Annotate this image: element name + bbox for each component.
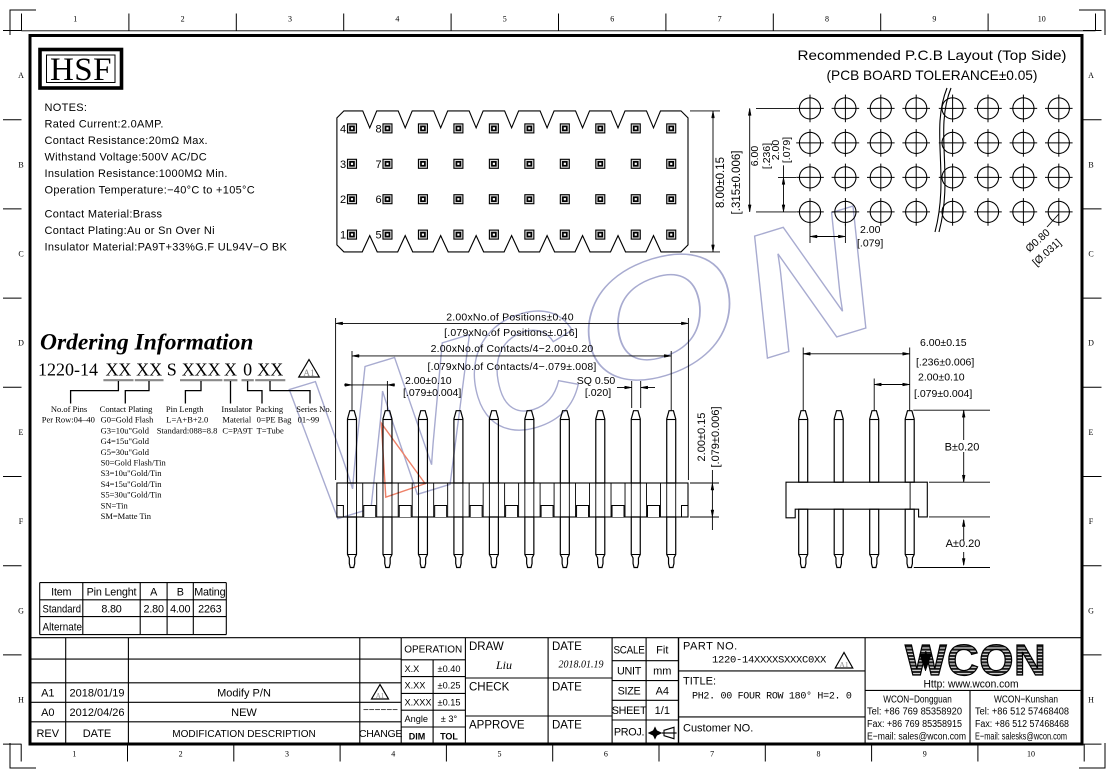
svg-text:H: H: [18, 696, 24, 705]
svg-text:[.079]: [.079]: [781, 137, 793, 163]
svg-text:2018.01.19: 2018.01.19: [559, 660, 604, 671]
svg-text:2012/04/26: 2012/04/26: [69, 707, 124, 719]
svg-text:Angle: Angle: [405, 714, 429, 724]
svg-text:A1: A1: [839, 660, 848, 669]
svg-text:1: 1: [73, 15, 77, 24]
svg-text:Per Row:04–40: Per Row:04–40: [42, 415, 95, 425]
svg-text:Fax: +86 769 85358915: Fax: +86 769 85358915: [867, 719, 962, 730]
svg-text:1220-14: 1220-14: [38, 360, 98, 380]
svg-text:C: C: [18, 250, 23, 259]
svg-text:3: 3: [288, 15, 292, 24]
svg-text:S: S: [167, 360, 177, 380]
svg-text:C: C: [1088, 250, 1093, 259]
svg-text:mm: mm: [653, 666, 671, 678]
svg-text:Insulation Resistance:1000MΩ M: Insulation Resistance:1000MΩ Min.: [45, 168, 228, 180]
svg-text:[.079±0.004]: [.079±0.004]: [403, 387, 461, 399]
svg-text:A: A: [18, 71, 24, 80]
svg-text:9: 9: [932, 15, 936, 24]
svg-text:S3=10u"Gold/Tin: S3=10u"Gold/Tin: [101, 468, 163, 478]
svg-text:[.079]: [.079]: [857, 238, 883, 250]
svg-text:(PCB BOARD TOLERANCE±0.05): (PCB BOARD TOLERANCE±0.05): [827, 67, 1038, 83]
svg-text:CHANGE: CHANGE: [359, 728, 402, 740]
svg-text:4: 4: [391, 750, 395, 759]
svg-text:−−−−−−: −−−−−−: [363, 705, 398, 716]
svg-text:XX: XX: [136, 360, 162, 380]
svg-text:NEW: NEW: [231, 707, 257, 719]
svg-text:XXX: XXX: [182, 360, 221, 380]
svg-text:PH2. 00 FOUR ROW 180° H=2. 0: PH2. 00 FOUR ROW 180° H=2. 0: [692, 691, 852, 703]
svg-text:7: 7: [718, 15, 722, 24]
svg-text:5: 5: [503, 15, 507, 24]
svg-text:Http: www.wcon.com: Http: www.wcon.com: [924, 679, 1019, 691]
svg-text:3: 3: [285, 750, 289, 759]
svg-text:E−mail: salesks@wcon.com: E−mail: salesks@wcon.com: [975, 732, 1067, 743]
svg-text:2: 2: [181, 15, 185, 24]
svg-text:A±0.20: A±0.20: [946, 538, 981, 550]
svg-text:5: 5: [498, 750, 502, 759]
svg-text:4: 4: [395, 15, 399, 24]
svg-text:SHEET: SHEET: [612, 705, 647, 717]
svg-text:9: 9: [923, 750, 927, 759]
svg-text:[.020]: [.020]: [585, 387, 611, 399]
svg-text:Withstand Voltage:500V AC/DC: Withstand Voltage:500V AC/DC: [45, 151, 208, 163]
svg-text:DATE: DATE: [552, 641, 582, 653]
svg-text:CHECK: CHECK: [469, 682, 510, 694]
svg-text:Packing: Packing: [256, 404, 284, 414]
svg-text:Mating: Mating: [194, 587, 225, 599]
svg-text:NOTES:: NOTES:: [45, 102, 88, 114]
svg-text:DATE: DATE: [83, 728, 112, 740]
svg-text:± 3°: ± 3°: [441, 714, 458, 724]
svg-text:E: E: [1089, 428, 1094, 437]
svg-text:3: 3: [340, 159, 346, 171]
svg-text:MODIFICATION DESCRIPTION: MODIFICATION DESCRIPTION: [172, 728, 316, 740]
svg-text:No.of Pins: No.of Pins: [51, 404, 87, 414]
svg-text:HSF: HSF: [50, 52, 112, 88]
svg-text:±0.40: ±0.40: [438, 664, 461, 674]
svg-text:F: F: [1089, 517, 1094, 526]
svg-text:Series No.: Series No.: [296, 404, 331, 414]
svg-text:DATE: DATE: [552, 720, 582, 732]
svg-text:SQ 0.50: SQ 0.50: [577, 375, 616, 387]
svg-text:Tel: +86 769 85358920: Tel: +86 769 85358920: [867, 707, 962, 718]
svg-text:A0: A0: [41, 707, 54, 719]
svg-text:OPERATION: OPERATION: [404, 644, 462, 656]
svg-text:0=PE Bag: 0=PE Bag: [257, 415, 293, 425]
svg-text:5: 5: [375, 230, 381, 242]
svg-text:2018/01/19: 2018/01/19: [69, 688, 124, 700]
svg-text:Insulator Material:PA9T+33%G.F: Insulator Material:PA9T+33%G.F UL94V−O B…: [45, 241, 288, 253]
svg-text:2.00xNo.of Positions±0.40: 2.00xNo.of Positions±0.40: [446, 312, 574, 324]
svg-text:Standard: Standard: [43, 604, 82, 616]
svg-text:DRAW: DRAW: [469, 641, 504, 653]
svg-text:DIM: DIM: [409, 732, 426, 742]
svg-text:7: 7: [710, 750, 714, 759]
svg-text:2: 2: [340, 194, 346, 206]
svg-text:APPROVE: APPROVE: [469, 720, 525, 732]
svg-text:Operation Temperature:−40°C to: Operation Temperature:−40°C to +105°C: [45, 184, 255, 196]
svg-text:G: G: [18, 606, 24, 615]
svg-text:A1: A1: [376, 692, 385, 700]
svg-text:Fax: +86 512 57468468: Fax: +86 512 57468468: [975, 719, 1069, 730]
svg-text:T=Tube: T=Tube: [257, 425, 284, 435]
svg-text:WCON−Kunshan: WCON−Kunshan: [994, 694, 1058, 706]
svg-text:2.00±0.10: 2.00±0.10: [918, 372, 965, 384]
svg-text:C=PA9T: C=PA9T: [222, 425, 253, 435]
svg-text:1: 1: [72, 750, 76, 759]
svg-text:A1: A1: [303, 369, 315, 379]
svg-text:D: D: [1088, 339, 1094, 348]
svg-text:G0=Gold Flash: G0=Gold Flash: [101, 415, 154, 425]
svg-text:Contact Material:Brass: Contact Material:Brass: [45, 209, 163, 221]
svg-text:01~99: 01~99: [298, 415, 320, 425]
svg-text:Insulator: Insulator: [221, 404, 251, 414]
svg-text:[.079xNo.of Contacts/4−.079±.0: [.079xNo.of Contacts/4−.079±.008]: [427, 361, 596, 373]
svg-text:B±0.20: B±0.20: [945, 442, 980, 454]
svg-text:Pin Length: Pin Length: [166, 404, 204, 414]
svg-text:TOL: TOL: [440, 732, 458, 742]
svg-text:1220-14XXXXSXXXC0XX: 1220-14XXXXSXXXC0XX: [712, 655, 827, 667]
svg-text:G5=30u"Gold: G5=30u"Gold: [101, 447, 150, 457]
svg-text:[.079±0.004]: [.079±0.004]: [914, 388, 972, 400]
svg-text:Modify P/N: Modify P/N: [217, 688, 271, 700]
svg-text:8: 8: [375, 123, 381, 135]
svg-text:PROJ.: PROJ.: [614, 727, 645, 739]
svg-text:[.315±0.006]: [.315±0.006]: [731, 151, 743, 215]
svg-text:B: B: [18, 160, 23, 169]
svg-text:4.00: 4.00: [170, 604, 190, 616]
svg-text:8.00±0.15: 8.00±0.15: [715, 157, 727, 208]
svg-text:H: H: [1088, 696, 1094, 705]
svg-text:Standard:088=8.8: Standard:088=8.8: [157, 425, 218, 435]
svg-text:2.00±0.10: 2.00±0.10: [405, 375, 452, 387]
svg-text:B: B: [1088, 160, 1093, 169]
svg-text:Pin Lenght: Pin Lenght: [87, 587, 137, 599]
svg-text:Rated Current:2.0AMP.: Rated Current:2.0AMP.: [45, 119, 164, 131]
svg-text:2263: 2263: [198, 604, 221, 616]
svg-text:6.00±0.15: 6.00±0.15: [920, 337, 967, 349]
svg-text:4: 4: [340, 123, 346, 135]
svg-text:TITLE:: TITLE:: [683, 676, 716, 688]
svg-text:[.079±0.006]: [.079±0.006]: [710, 406, 722, 467]
svg-text:X.XX: X.XX: [405, 681, 426, 691]
svg-text:XX: XX: [257, 360, 283, 380]
svg-text:Contact Plating: Contact Plating: [100, 404, 153, 414]
svg-text:1: 1: [340, 230, 346, 242]
svg-text:8.80: 8.80: [101, 604, 121, 616]
svg-text:Fit: Fit: [656, 645, 668, 657]
svg-text:X.XXX: X.XXX: [405, 697, 432, 707]
svg-text:A1: A1: [41, 688, 54, 700]
svg-text:UNIT: UNIT: [617, 666, 642, 678]
svg-text:1/1: 1/1: [655, 705, 670, 717]
svg-text:2.00: 2.00: [860, 224, 881, 236]
svg-text:2.80: 2.80: [144, 604, 164, 616]
svg-text:±0.15: ±0.15: [438, 697, 461, 707]
svg-text:6: 6: [610, 15, 614, 24]
svg-text:G4=15u"Gold: G4=15u"Gold: [101, 436, 150, 446]
svg-text:6: 6: [375, 194, 381, 206]
svg-text:REV: REV: [36, 728, 59, 740]
svg-text:D: D: [18, 339, 24, 348]
svg-text:SM=Matte Tin: SM=Matte Tin: [101, 511, 152, 521]
svg-text:6: 6: [604, 750, 608, 759]
svg-text:Recommended P.C.B Layout (Top: Recommended P.C.B Layout (Top Side): [798, 47, 1067, 63]
svg-text:B: B: [177, 587, 184, 599]
svg-text:Tel: +86 512 57468408: Tel: +86 512 57468408: [975, 707, 1069, 718]
svg-text:F: F: [19, 517, 24, 526]
svg-text:2.00xNo.of Contacts/4−2.00±0.2: 2.00xNo.of Contacts/4−2.00±0.20: [431, 343, 594, 355]
svg-text:S4=15u"Gold/Tin: S4=15u"Gold/Tin: [101, 479, 163, 489]
svg-text:8: 8: [825, 15, 829, 24]
svg-text:E: E: [19, 428, 24, 437]
svg-text:Contact Plating:Au or Sn Over: Contact Plating:Au or Sn Over Ni: [45, 225, 215, 237]
svg-text:S5=30u"Gold/Tin: S5=30u"Gold/Tin: [101, 490, 163, 500]
svg-text:X: X: [224, 360, 237, 380]
svg-text:Customer NO.: Customer NO.: [683, 723, 753, 735]
svg-text:E−mail: sales@wcon.com: E−mail: sales@wcon.com: [867, 732, 966, 743]
svg-text:G3=10u"Gold: G3=10u"Gold: [101, 425, 150, 435]
svg-text:6.00: 6.00: [749, 146, 761, 167]
svg-text:[.236±0.006]: [.236±0.006]: [916, 356, 974, 368]
svg-text:±0.25: ±0.25: [438, 681, 461, 691]
svg-text:A: A: [1088, 71, 1094, 80]
svg-text:L=A+B+2.0: L=A+B+2.0: [166, 415, 208, 425]
svg-text:G: G: [1088, 606, 1094, 615]
svg-text:X.X: X.X: [405, 664, 420, 674]
svg-text:A: A: [150, 587, 158, 599]
svg-text:Item: Item: [51, 587, 71, 599]
svg-text:Liu: Liu: [495, 658, 512, 672]
svg-text:Material: Material: [222, 415, 251, 425]
svg-text:S0=Gold Flash/Tin: S0=Gold Flash/Tin: [101, 458, 167, 468]
svg-text:SCALE: SCALE: [614, 645, 645, 657]
svg-text:10: 10: [1027, 750, 1035, 759]
svg-text:0: 0: [243, 360, 252, 380]
svg-text:10: 10: [1038, 15, 1046, 24]
svg-text:XX: XX: [105, 360, 131, 380]
svg-text:SIZE: SIZE: [618, 686, 641, 698]
svg-text:PART NO.: PART NO.: [683, 641, 738, 653]
svg-text:2.00±0.15: 2.00±0.15: [696, 413, 708, 462]
svg-text:[.079xNo.of Positions±.016]: [.079xNo.of Positions±.016]: [444, 327, 578, 339]
svg-text:Alternate: Alternate: [43, 622, 83, 634]
svg-text:DATE: DATE: [552, 682, 582, 694]
svg-text:WCON−Dongguan: WCON−Dongguan: [883, 694, 952, 706]
svg-text:7: 7: [375, 159, 381, 171]
svg-text:8: 8: [816, 750, 820, 759]
svg-text:SN=Tin: SN=Tin: [101, 500, 129, 510]
svg-text:Ordering Information: Ordering Information: [40, 330, 253, 355]
svg-text:Contact Resistance:20mΩ Max.: Contact Resistance:20mΩ Max.: [45, 135, 208, 147]
svg-text:2: 2: [179, 750, 183, 759]
svg-text:A4: A4: [656, 686, 669, 698]
